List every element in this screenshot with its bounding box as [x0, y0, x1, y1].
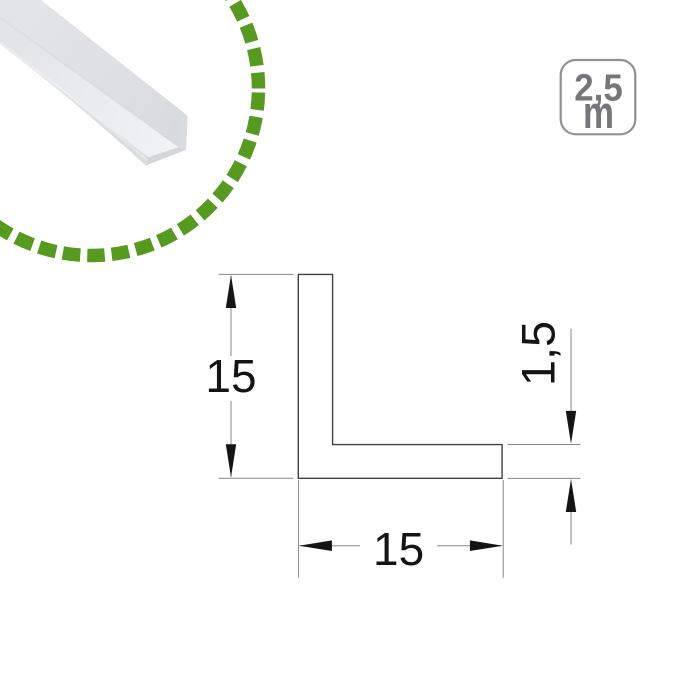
- svg-text:15: 15: [373, 523, 424, 575]
- svg-text:15: 15: [205, 350, 256, 402]
- svg-text:m: m: [583, 87, 614, 138]
- svg-text:1,5: 1,5: [512, 321, 565, 386]
